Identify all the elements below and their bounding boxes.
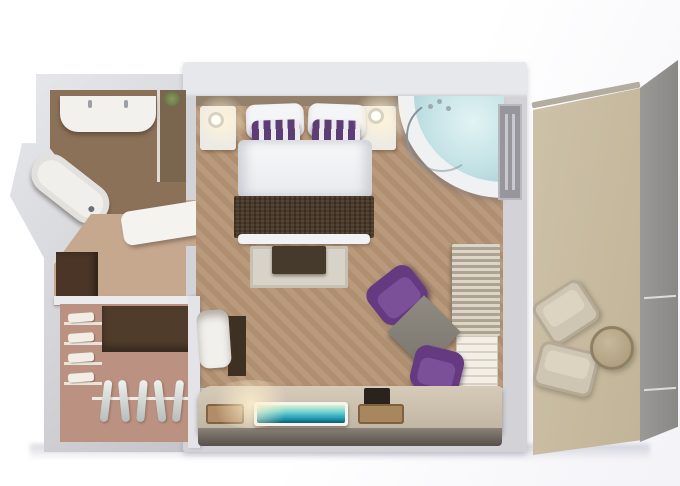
wall-lamp-left <box>208 112 224 128</box>
flat-tv <box>254 402 348 426</box>
bed-duvet <box>238 140 372 198</box>
woven-foot-bench <box>234 196 374 238</box>
wall-lamp-right <box>368 108 384 124</box>
balcony-door <box>498 104 522 200</box>
tub-jet <box>446 106 451 111</box>
tray-right <box>358 404 404 424</box>
bed-footer-strip <box>238 234 370 244</box>
tray-left <box>206 404 244 424</box>
bedroom <box>0 0 680 486</box>
floorplan-render <box>0 0 680 486</box>
desk <box>228 316 246 376</box>
desk-chair <box>196 309 232 369</box>
tv-console-front <box>198 428 502 446</box>
curtain-upper <box>452 244 500 336</box>
tub-jet <box>428 104 433 109</box>
ottoman <box>272 246 326 274</box>
tv-screen <box>257 405 345 423</box>
tub-jet <box>437 99 442 104</box>
